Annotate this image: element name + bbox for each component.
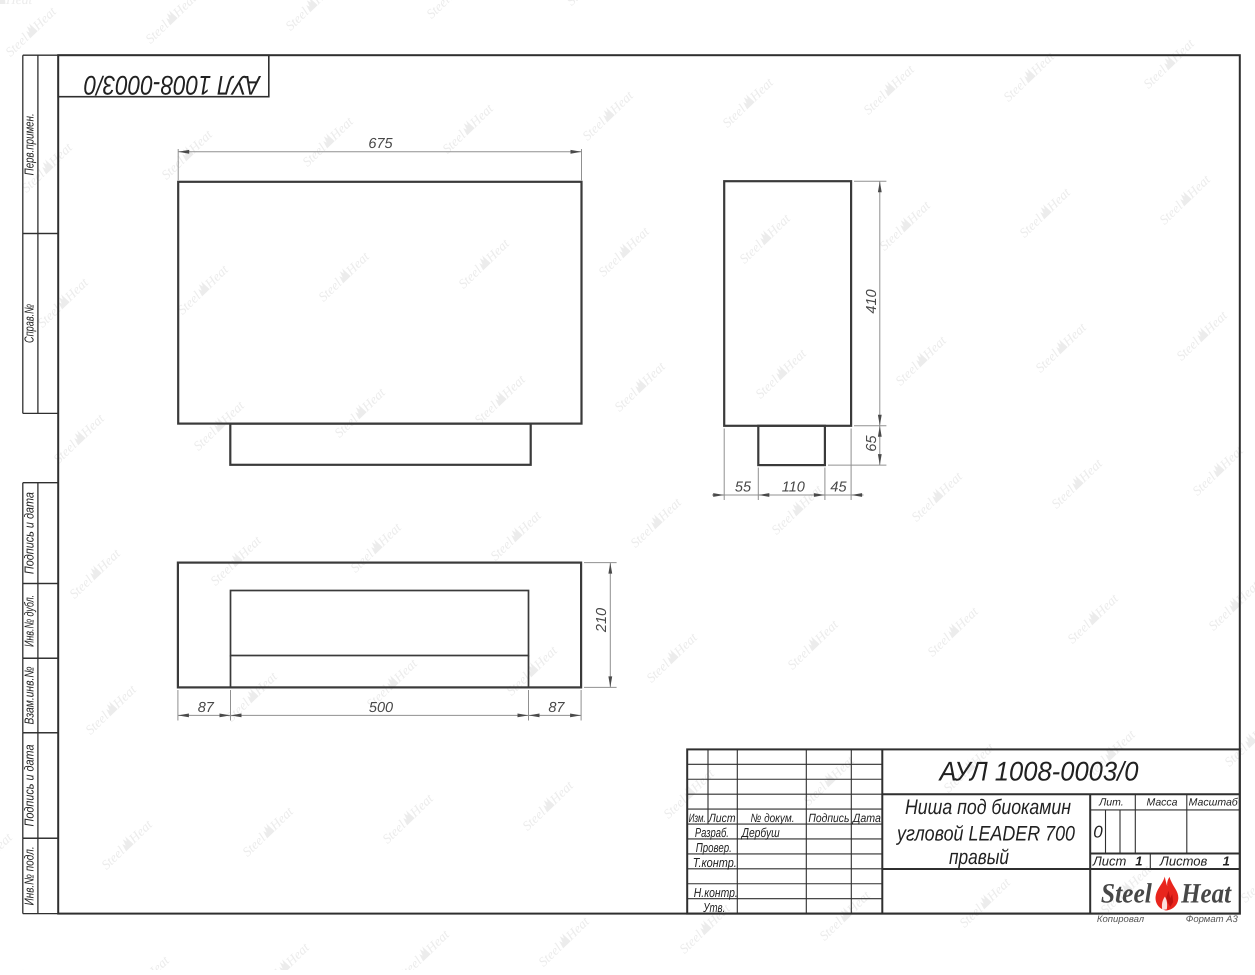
svg-text:АУЛ 1008-0003/0: АУЛ 1008-0003/0 <box>938 756 1139 786</box>
svg-text:Steel: Steel <box>1101 879 1152 910</box>
svg-text:Масса: Масса <box>1146 797 1177 809</box>
svg-text:Справ.№: Справ.№ <box>22 304 37 343</box>
svg-text:410: 410 <box>864 289 880 313</box>
svg-text:Инв.№ дубл.: Инв.№ дубл. <box>22 595 37 647</box>
svg-text:Листов: Листов <box>1159 854 1208 869</box>
svg-text:Копировал: Копировал <box>1097 914 1145 925</box>
svg-text:Подпись и дата: Подпись и дата <box>22 745 37 827</box>
svg-text:Изм.: Изм. <box>689 811 706 825</box>
svg-text:Утв.: Утв. <box>703 900 726 915</box>
svg-text:500: 500 <box>369 700 393 716</box>
svg-text:Подпись и дата: Подпись и дата <box>22 492 37 574</box>
svg-text:Ниша под биокамин: Ниша под биокамин <box>905 796 1071 819</box>
svg-text:1: 1 <box>1135 854 1142 869</box>
svg-text:87: 87 <box>198 700 215 716</box>
svg-text:45: 45 <box>830 480 847 496</box>
svg-text:Подпись: Подпись <box>808 811 849 825</box>
svg-text:Heat: Heat <box>1180 879 1232 910</box>
svg-text:Формат А3: Формат А3 <box>1186 914 1239 925</box>
svg-text:№ докум.: № докум. <box>751 811 795 825</box>
svg-text:0: 0 <box>1093 823 1103 842</box>
svg-text:1: 1 <box>1223 854 1230 869</box>
svg-text:Масштаб: Масштаб <box>1189 797 1239 809</box>
svg-text:Инв.№ подл.: Инв.№ подл. <box>22 846 37 905</box>
svg-text:65: 65 <box>864 435 880 452</box>
svg-text:Дербуш: Дербуш <box>740 825 780 840</box>
svg-text:Heat: Heat <box>5 0 33 7</box>
svg-text:Н.контр.: Н.контр. <box>694 885 738 900</box>
svg-text:Взам.инв.№: Взам.инв.№ <box>22 667 37 725</box>
svg-text:Провер.: Провер. <box>696 840 732 855</box>
svg-text:55: 55 <box>735 480 752 496</box>
svg-text:110: 110 <box>782 480 805 496</box>
svg-text:АУЛ 1008-0003/0: АУЛ 1008-0003/0 <box>84 70 262 100</box>
svg-text:Лит.: Лит. <box>1098 797 1124 809</box>
svg-text:Лист: Лист <box>1092 854 1127 869</box>
svg-text:210: 210 <box>594 608 610 633</box>
svg-text:Лист: Лист <box>708 811 736 825</box>
svg-text:Перв.примен.: Перв.примен. <box>22 113 37 175</box>
svg-text:87: 87 <box>548 700 565 716</box>
svg-text:675: 675 <box>368 136 393 152</box>
svg-text:правый: правый <box>949 846 1009 869</box>
svg-text:Разраб.: Разраб. <box>695 825 729 840</box>
svg-text:угловой LEADER 700: угловой LEADER 700 <box>895 823 1075 846</box>
svg-text:Т.контр.: Т.контр. <box>693 855 737 870</box>
svg-text:Дата: Дата <box>851 811 881 825</box>
